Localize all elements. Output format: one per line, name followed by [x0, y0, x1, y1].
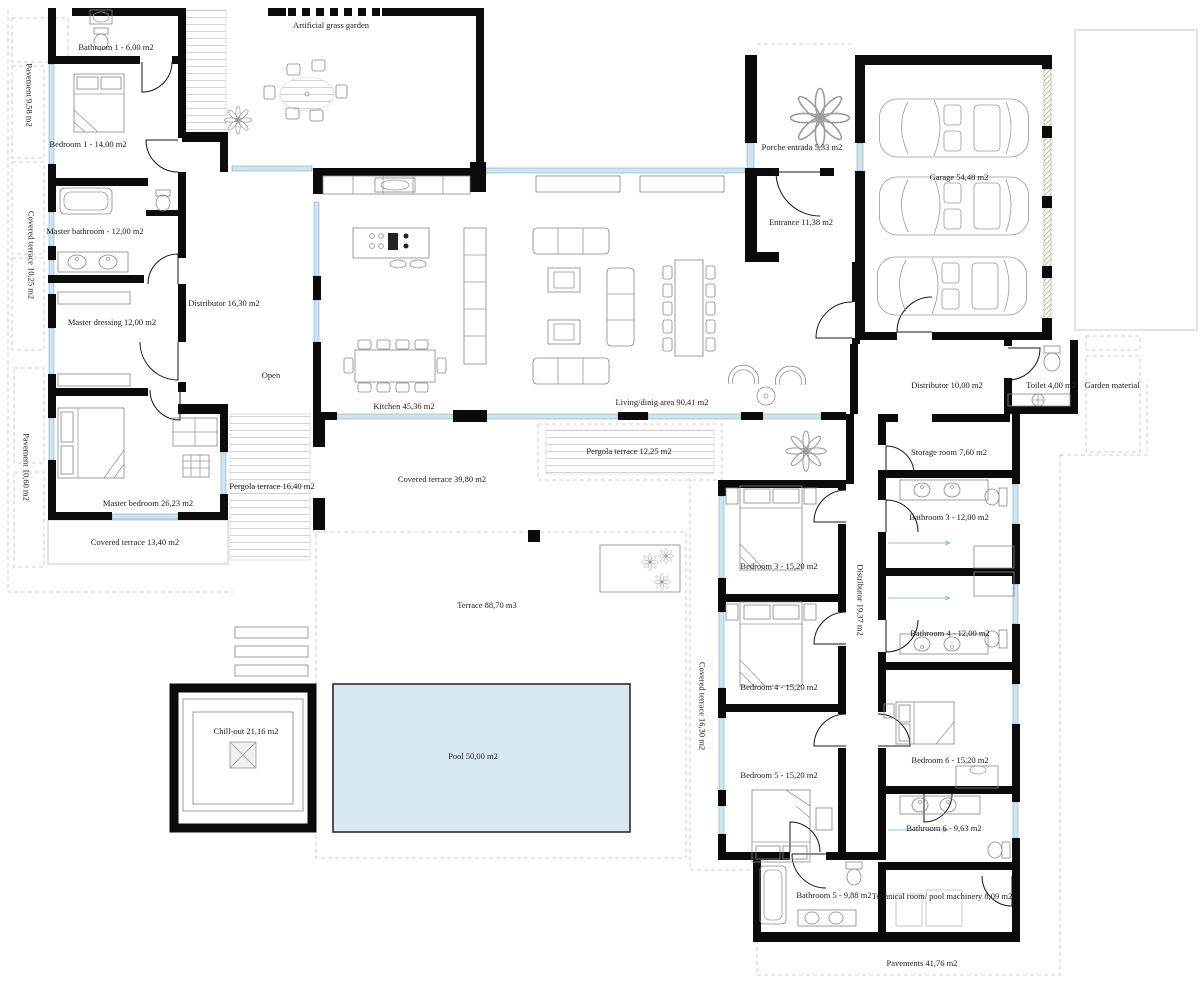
room-label-bedroom-1: Bedroom 1 - 14,00 m2: [49, 140, 126, 149]
room-label-distributor-garage: Distributor 10,00 m2: [911, 381, 983, 390]
room-label-bedroom-3: Bedroom 3 - 15,20 m2: [740, 562, 817, 571]
floor-plan: Pavement 9,58 m2 Covered terrace 10,25 m…: [0, 0, 1200, 985]
room-label-kitchen: Kitchen 45,36 m2: [373, 402, 434, 411]
room-label-toilet: Toilet 4,00 m2: [1026, 381, 1076, 390]
room-label-covered-terrace-east: Covered terrace 16,30 m2: [698, 662, 707, 750]
room-label-terrace: Terrace 88,70 m3: [457, 601, 517, 610]
room-label-distributor-hall: Distributor 16,30 m2: [188, 299, 260, 308]
room-label-bedroom-5: Bedroom 5 - 15,20 m2: [740, 771, 817, 780]
room-label-covered-terrace-west: Covered terrace 10,25 m2: [27, 211, 36, 299]
room-label-bathroom-5: Bathroom 5 - 9,88 m2: [796, 891, 871, 900]
room-label-master-bedroom: Master bedroom 26,23 m2: [103, 499, 193, 508]
room-label-covered-terrace-master: Covered terrace 13,40 m2: [91, 538, 179, 547]
room-label-pergola-terrace-south: Pergola terrace 12,25 m2: [586, 447, 671, 456]
room-label-distributor-bedrooms: Distributor 19,37 m2: [856, 564, 865, 636]
room-label-bathroom-6: Bathroom 6 - 9,63 m2: [906, 824, 981, 833]
room-label-bathroom-1: Bathroom 1 - 6,00 m2: [78, 43, 153, 52]
room-label-pavement-nw: Pavement 9,58 m2: [25, 63, 34, 127]
room-label-pool: Pool 50,00 m2: [448, 752, 498, 761]
room-label-bathroom-4: Bathroom 4 - 12,00 m2: [910, 629, 990, 638]
room-label-pavement-w: Pavement 10,60 m2: [22, 433, 31, 501]
room-label-pavements-south: Pavements 41,76 m2: [886, 959, 957, 968]
room-label-master-dressing: Master dressing 12,00 m2: [68, 318, 156, 327]
room-label-living-dining: Living/dinig area 90,41 m2: [615, 398, 708, 407]
pool-area: [174, 530, 680, 832]
room-label-entrance: Entrance 11,38 m2: [769, 218, 833, 227]
room-label-chill-out: Chill-out 21,16 m2: [214, 727, 279, 736]
room-label-master-bathroom: Master bathroom - 12,00 m2: [46, 227, 144, 236]
room-label-open-stair: Open: [262, 371, 280, 380]
room-label-bathroom-3: Bathroom 3 - 12,00 m2: [909, 513, 989, 522]
room-label-garden-material: Garden material: [1085, 381, 1140, 390]
room-label-bedroom-6: Bedroom 6 - 15,20 m2: [911, 756, 988, 765]
floor-plan-drawing: [0, 0, 1200, 985]
room-label-storage-room: Storage room 7,60 m2: [911, 448, 987, 457]
room-label-technical-room: Technical room/ pool machinery 8,09 m2: [872, 892, 1013, 901]
room-label-porche-entrada: Porche entrada 5,33 m2: [762, 143, 843, 152]
room-label-artificial-grass-garden: Artificial grass garden: [293, 21, 369, 30]
room-label-bedroom-4: Bedroom 4 - 15,20 m2: [740, 683, 817, 692]
room-label-garage: Garage 54,48 m2: [930, 173, 989, 182]
room-label-pergola-terrace-west: Pergola terrace 16,40 m2: [229, 482, 314, 491]
room-label-covered-terrace-main: Covered terrace 39,80 m2: [398, 475, 486, 484]
